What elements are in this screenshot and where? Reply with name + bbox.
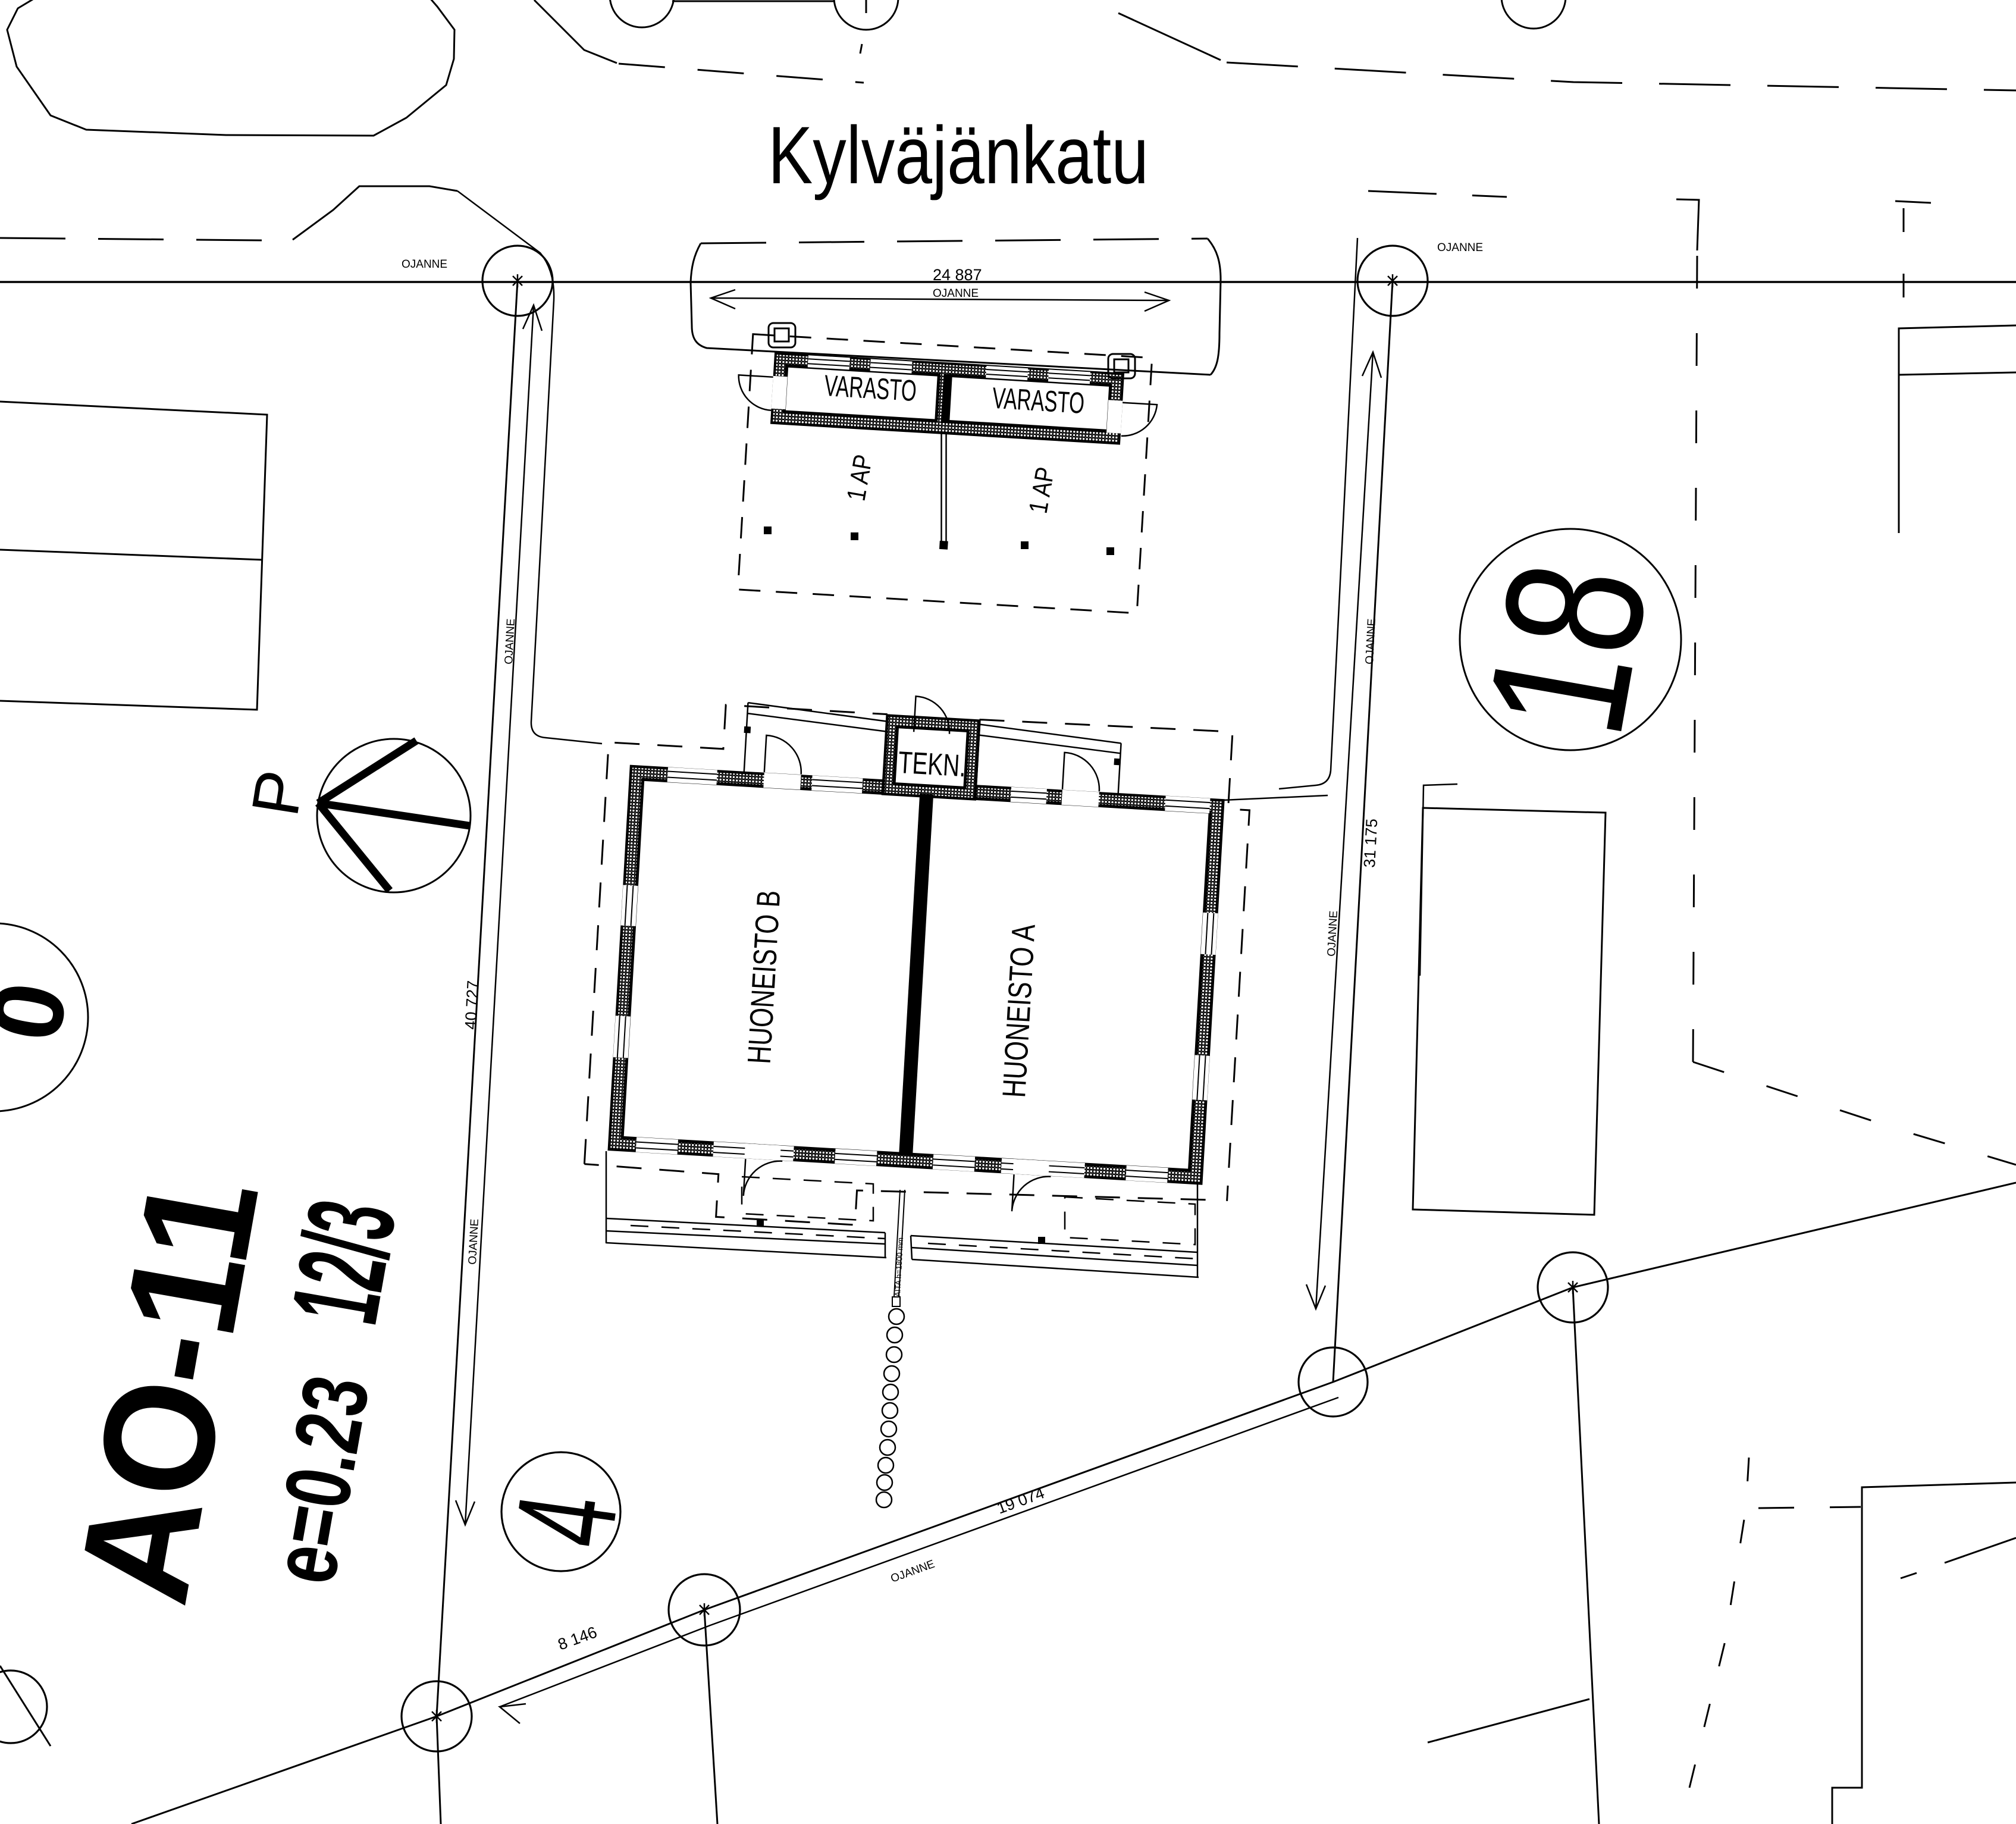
svg-text:OJANNE: OJANNE	[402, 258, 447, 271]
svg-text:40 727: 40 727	[462, 980, 482, 1030]
svg-text:OJANNE: OJANNE	[466, 1218, 481, 1265]
svg-text:VARASTO: VARASTO	[823, 369, 917, 408]
svg-text:OJANNE: OJANNE	[503, 618, 518, 665]
svg-text:OJANNE: OJANNE	[933, 287, 979, 300]
svg-text:24 887: 24 887	[933, 266, 982, 284]
svg-text:TEKN.: TEKN.	[897, 745, 967, 783]
svg-text:OJANNE: OJANNE	[1325, 910, 1340, 957]
svg-text:Kylväjänkatu: Kylväjänkatu	[768, 110, 1149, 201]
svg-text:31 175: 31 175	[1360, 818, 1381, 868]
svg-text:OJANNE: OJANNE	[1437, 242, 1483, 254]
svg-text:VARASTO: VARASTO	[992, 381, 1086, 420]
svg-text:12/3: 12/3	[265, 1191, 422, 1333]
svg-text:OJANNE: OJANNE	[1363, 618, 1378, 665]
